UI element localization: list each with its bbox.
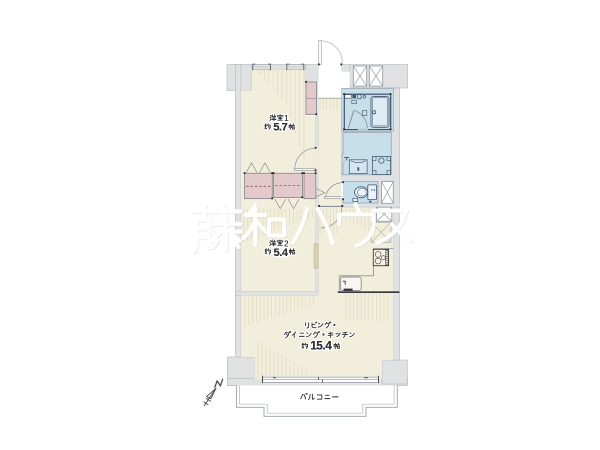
svg-text:5.4: 5.4: [274, 247, 289, 259]
svg-text:15.4: 15.4: [310, 339, 332, 353]
svg-text:5.7: 5.7: [273, 121, 287, 133]
